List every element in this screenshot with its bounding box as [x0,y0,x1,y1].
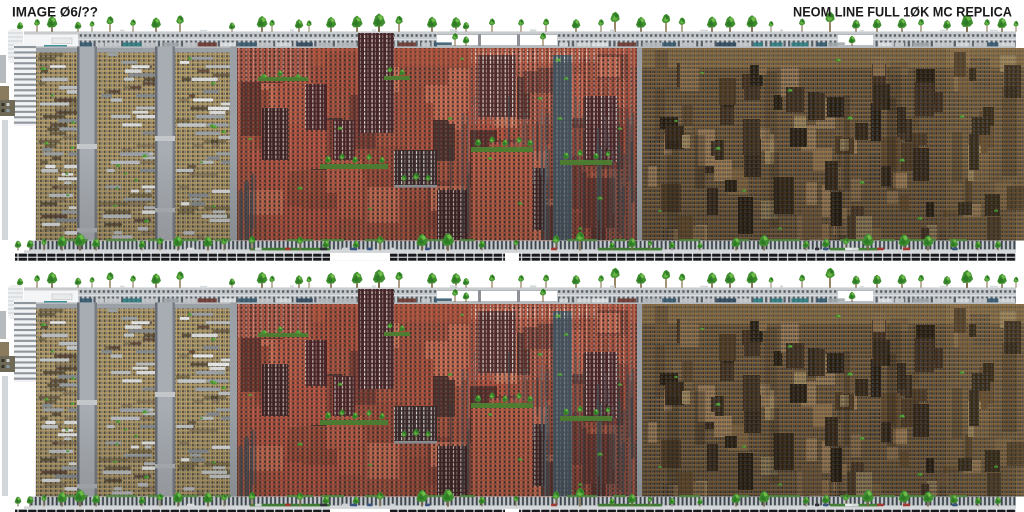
svg-text:IMAGE Ø6/??: IMAGE Ø6/?? [12,4,98,20]
svg-text:NEOM LINE FULL 1ØK MC REPLICA: NEOM LINE FULL 1ØK MC REPLICA [793,4,1012,20]
